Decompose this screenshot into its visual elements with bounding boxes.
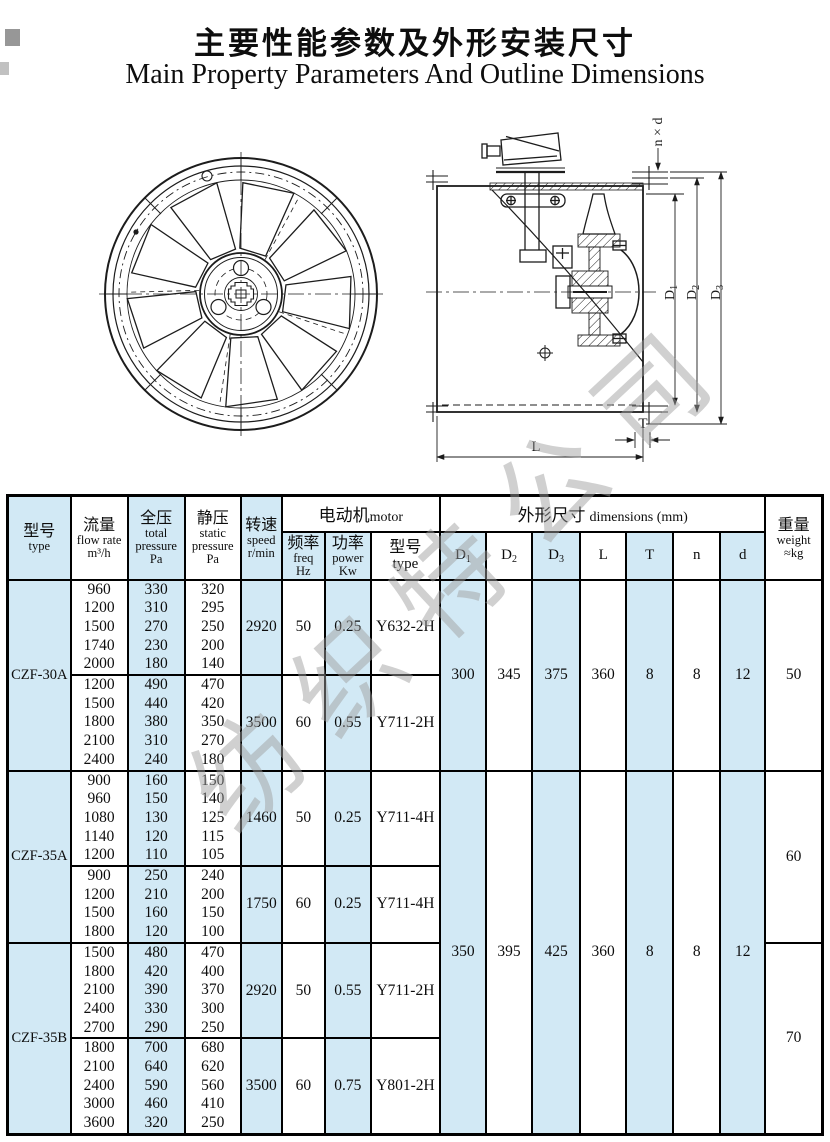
col-header-flow: 流量flow ratem³/h: [71, 496, 128, 580]
casing-wall-section: [490, 183, 643, 190]
dim-d2-value: 395: [486, 771, 532, 1135]
power-value: 0.55: [325, 675, 371, 771]
fan-type: CZF-30A: [8, 580, 71, 771]
col-header-freq: 频率freqHz: [282, 532, 325, 580]
static-pressure-values: 470 400 370 300 250: [185, 943, 241, 1039]
col-header-motor-type: 型号type: [371, 532, 440, 580]
total-pressure-values: 250 210 160 120: [128, 866, 185, 943]
motor-type-value: Y711-2H: [371, 675, 440, 771]
power-value: 0.75: [325, 1038, 371, 1134]
power-value: 0.55: [325, 943, 371, 1039]
power-value: 0.25: [325, 771, 371, 867]
col-header-type: 型号type: [8, 496, 71, 580]
flow-values: 900 960 1080 1140 1200: [71, 771, 128, 867]
target-mark: [537, 345, 553, 361]
dim-d1-value: 300: [440, 580, 486, 771]
group-header-motor: 电动机motor: [282, 496, 440, 532]
dim-t-value: 8: [626, 580, 673, 771]
dim-d3-value: 425: [532, 771, 580, 1135]
total-pressure-values: 160 150 130 120 110: [128, 771, 185, 867]
static-pressure-values: 470 420 350 270 180: [185, 675, 241, 771]
static-pressure-values: 680 620 560 410 250: [185, 1038, 241, 1134]
col-header-power: 功率powerKw: [325, 532, 371, 580]
freq-value: 60: [282, 1038, 325, 1134]
dim-l-value: 360: [580, 580, 626, 771]
fan-section-view-drawing: n × d D1 D2 D3 L T: [400, 110, 830, 472]
dim-n-value: 8: [673, 771, 720, 1135]
motor-type-value: Y711-4H: [371, 771, 440, 867]
col-header-l: L: [580, 532, 626, 580]
freq-value: 50: [282, 580, 325, 676]
total-pressure-values: 330 310 270 230 180: [128, 580, 185, 676]
speed-value: 3500: [241, 1038, 282, 1134]
col-header-total-pressure: 全压total pressurePa: [128, 496, 185, 580]
speed-value: 1750: [241, 866, 282, 943]
page-title-chinese: 主要性能参数及外形安装尺寸: [0, 18, 830, 63]
dim-t-value: 8: [626, 771, 673, 1135]
dim-d3-value: 375: [532, 580, 580, 771]
col-header-static-pressure: 静压static pressurePa: [185, 496, 241, 580]
flow-values: 960 1200 1500 1740 2000: [71, 580, 128, 676]
dim-label-t: T: [638, 416, 647, 432]
col-header-weight: 重量weight≈kg: [765, 496, 822, 580]
motor-type-value: Y711-2H: [371, 943, 440, 1039]
speed-value: 2920: [241, 580, 282, 676]
weight-value: 70: [765, 943, 822, 1135]
speed-value: 1460: [241, 771, 282, 867]
total-pressure-values: 700 640 590 460 320: [128, 1038, 185, 1134]
terminal-box: [482, 133, 565, 172]
col-header-t: T: [626, 532, 673, 580]
static-pressure-values: 320 295 250 200 140: [185, 580, 241, 676]
fan-casing: [437, 186, 643, 412]
dim-label-nxd: n × d: [651, 118, 666, 147]
group-header-dimensions: 外形尺寸 dimensions (mm): [440, 496, 765, 532]
freq-value: 50: [282, 943, 325, 1039]
dim-n-value: 8: [673, 580, 720, 771]
scan-artifact: [0, 62, 9, 75]
fan-type: CZF-35A: [8, 771, 71, 943]
col-header-d1: D1: [440, 532, 486, 580]
motor-type-value: Y801-2H: [371, 1038, 440, 1134]
total-pressure-values: 490 440 380 310 240: [128, 675, 185, 771]
motor-assembly: [556, 194, 639, 346]
static-pressure-values: 240 200 150 100: [185, 866, 241, 943]
total-pressure-values: 480 420 390 330 290: [128, 943, 185, 1039]
dim-label-d3: D3: [709, 285, 726, 300]
fan-front-view-drawing: [95, 148, 387, 440]
rim-mark: [133, 229, 138, 234]
power-value: 0.25: [325, 580, 371, 676]
page-title-english: Main Property Parameters And Outline Dim…: [0, 59, 830, 91]
dim-label-l: L: [531, 439, 540, 455]
dim-d-value: 12: [720, 580, 765, 771]
motor-type-value: Y711-4H: [371, 866, 440, 943]
freq-value: 50: [282, 771, 325, 867]
static-pressure-values: 150 140 125 115 105: [185, 771, 241, 867]
flange-tabs: [426, 166, 668, 424]
col-header-d2: D2: [486, 532, 532, 580]
flow-values: 1200 1500 1800 2100 2400: [71, 675, 128, 771]
dim-l-value: 360: [580, 771, 626, 1135]
speed-value: 3500: [241, 675, 282, 771]
power-value: 0.25: [325, 866, 371, 943]
fan-type: CZF-35B: [8, 943, 71, 1135]
motor-type-value: Y632-2H: [371, 580, 440, 676]
dim-d1-value: 350: [440, 771, 486, 1135]
flow-values: 900 1200 1500 1800: [71, 866, 128, 943]
flow-values: 1500 1800 2100 2400 2700: [71, 943, 128, 1039]
col-header-d: d: [720, 532, 765, 580]
speed-value: 2920: [241, 943, 282, 1039]
rim-bolt-hole: [202, 171, 212, 181]
dim-label-d2: D2: [685, 285, 702, 300]
flow-values: 1800 2100 2400 3000 3600: [71, 1038, 128, 1134]
col-header-n: n: [673, 532, 720, 580]
dim-d2-value: 345: [486, 580, 532, 771]
freq-value: 60: [282, 675, 325, 771]
col-header-speed: 转速speedr/min: [241, 496, 282, 580]
weight-value: 50: [765, 580, 822, 771]
freq-value: 60: [282, 866, 325, 943]
dim-label-d1: D1: [663, 285, 680, 300]
document-page: 主要性能参数及外形安装尺寸 Main Property Parameters A…: [0, 0, 830, 1142]
col-header-d3: D3: [532, 532, 580, 580]
dim-d-value: 12: [720, 771, 765, 1135]
weight-value: 60: [765, 771, 822, 943]
scan-artifact: [5, 29, 20, 46]
parameters-table: 型号type 流量flow ratem³/h 全压total pressureP…: [6, 494, 824, 1136]
